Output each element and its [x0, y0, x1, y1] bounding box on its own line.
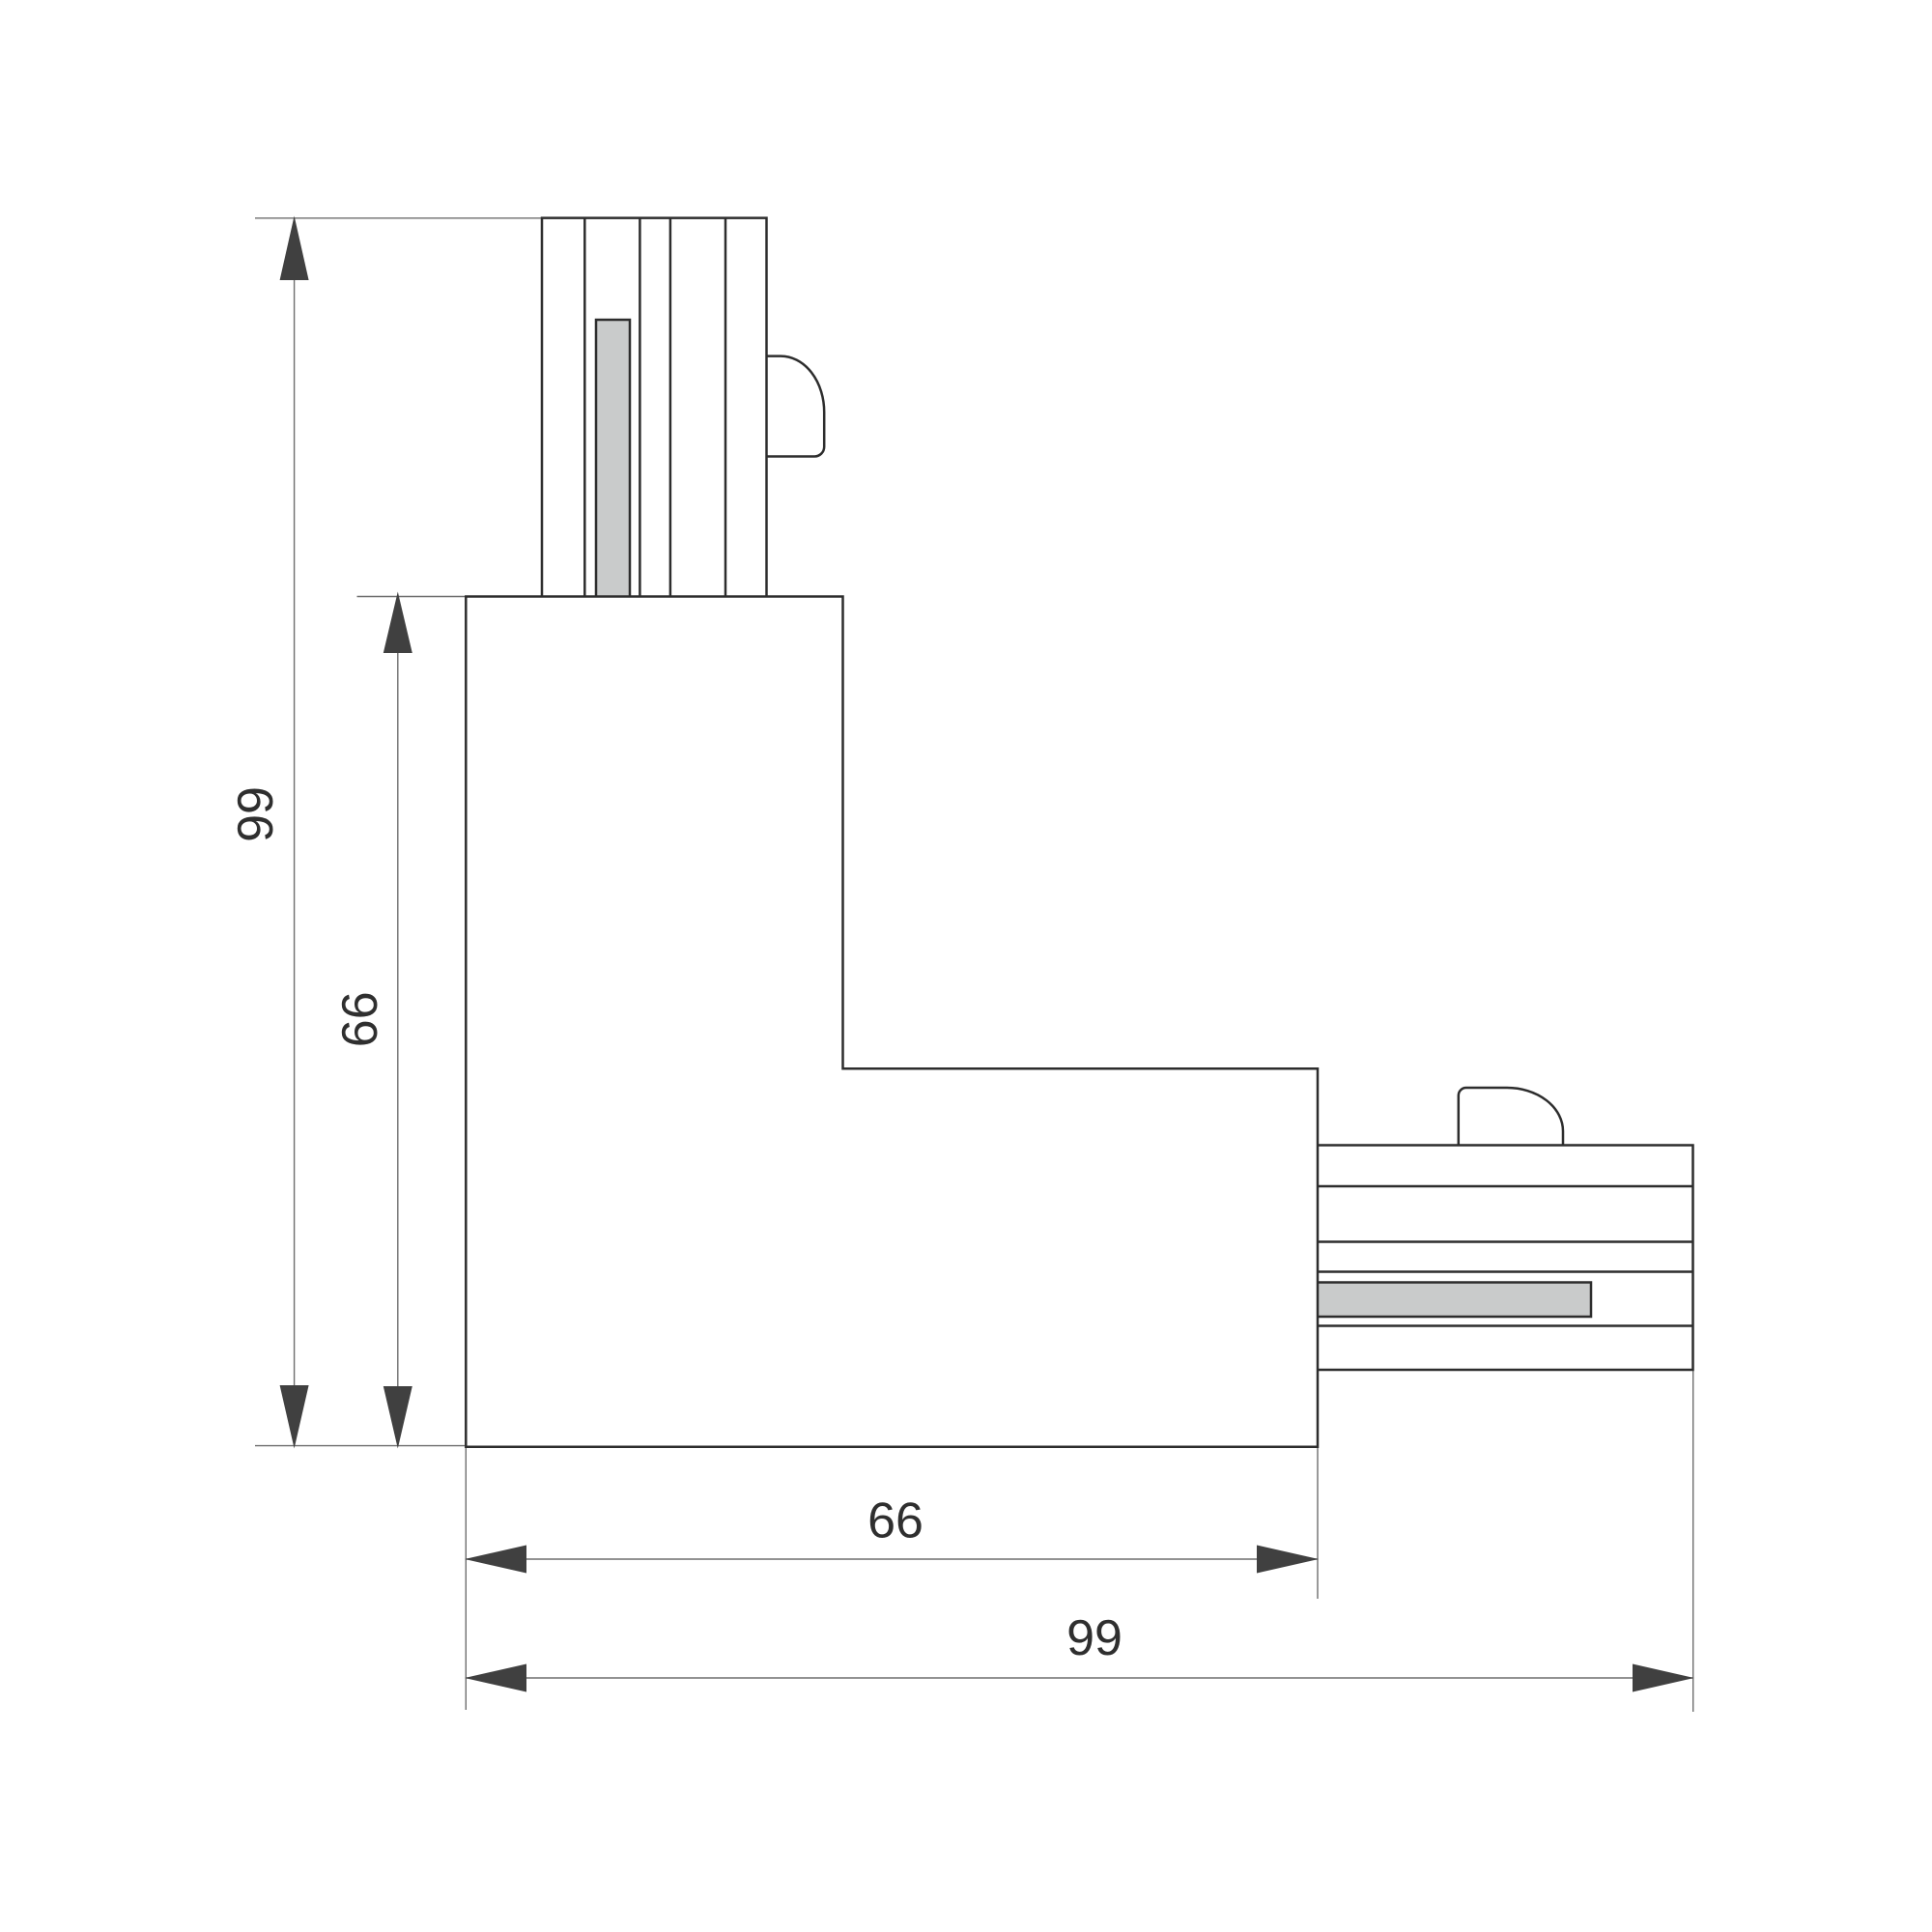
svg-text:99: 99 [228, 786, 284, 842]
svg-text:66: 66 [332, 991, 388, 1047]
svg-text:99: 99 [1066, 1610, 1122, 1666]
svg-text:66: 66 [867, 1493, 923, 1549]
